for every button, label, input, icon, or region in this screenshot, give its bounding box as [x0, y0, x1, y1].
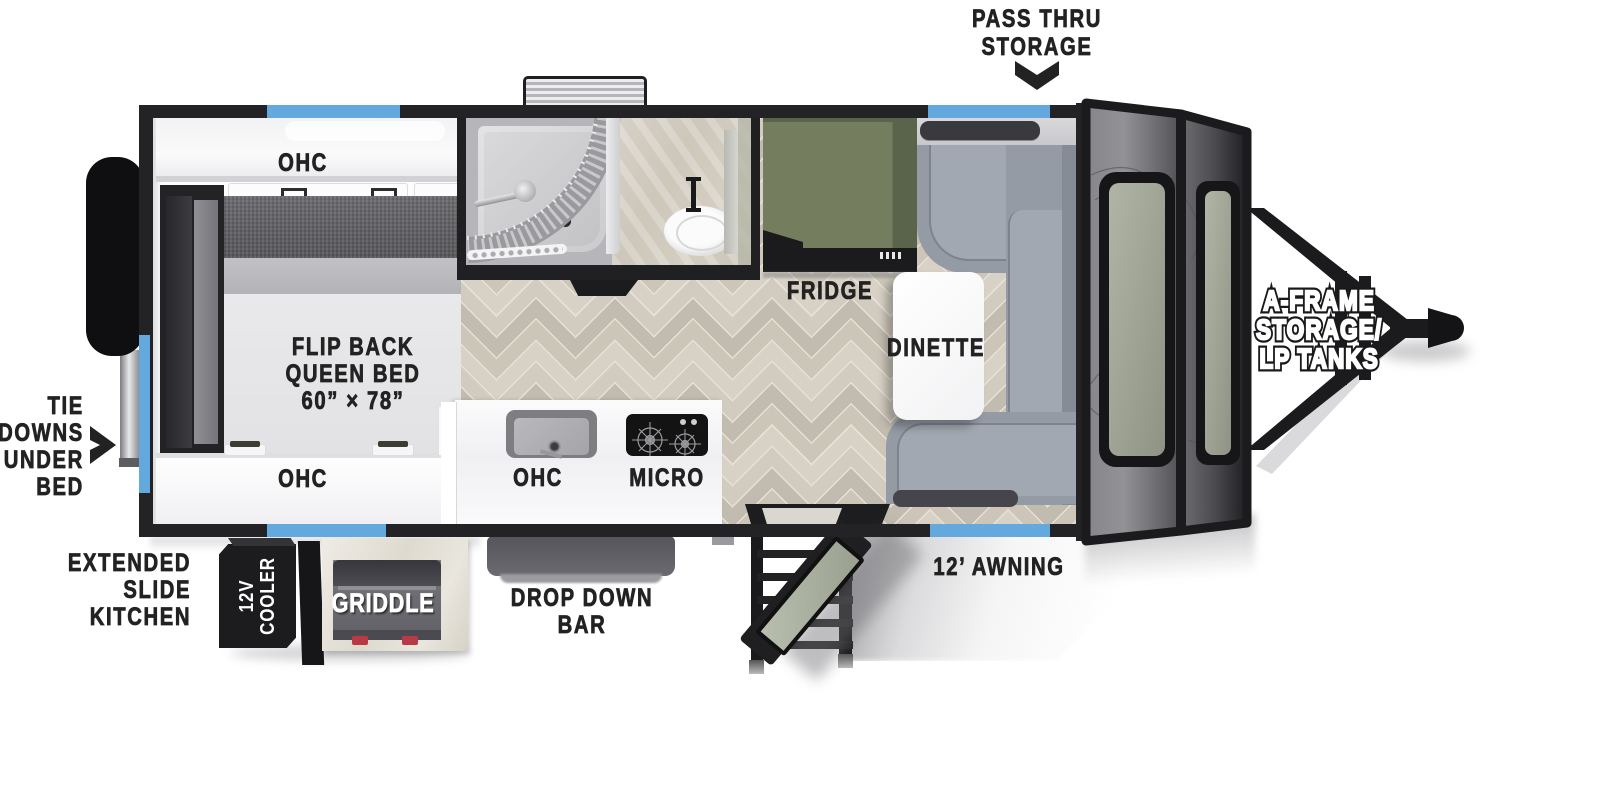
svg-text:STORAGE/: STORAGE/: [1256, 315, 1382, 346]
svg-text:LP TANKS: LP TANKS: [1259, 344, 1378, 375]
svg-text:A-FRAME: A-FRAME: [1263, 286, 1375, 317]
